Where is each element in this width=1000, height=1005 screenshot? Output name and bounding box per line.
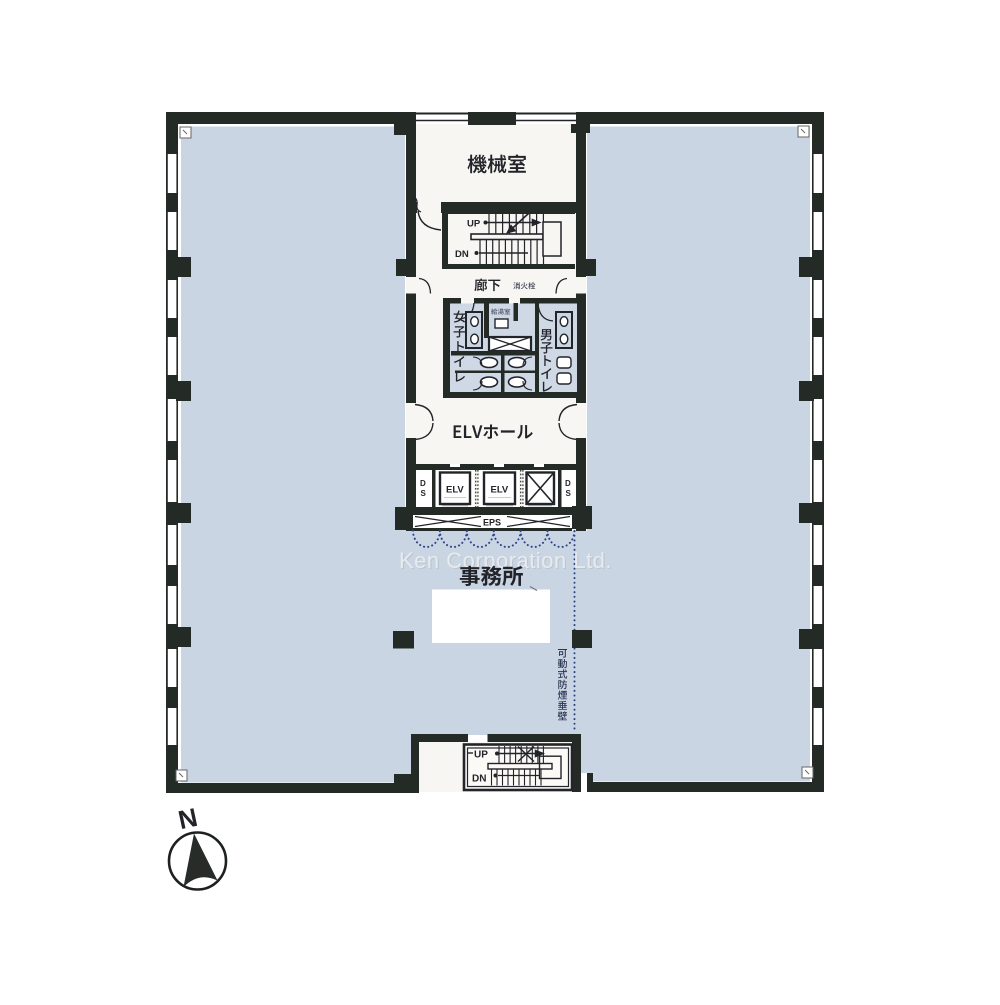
svg-text:ELV: ELV <box>491 485 509 496</box>
svg-text:DN: DN <box>472 774 486 785</box>
svg-text:D: D <box>420 479 426 488</box>
svg-text:D: D <box>565 479 571 488</box>
svg-text:UP: UP <box>474 750 488 761</box>
svg-text:EPS: EPS <box>483 518 501 528</box>
svg-text:S: S <box>566 489 572 498</box>
svg-text:Ken Corporation Ltd.: Ken Corporation Ltd. <box>399 548 612 573</box>
svg-text:S: S <box>421 489 427 498</box>
svg-text:UP: UP <box>467 219 481 230</box>
svg-text:ELV: ELV <box>446 485 464 496</box>
svg-text:DN: DN <box>455 249 469 260</box>
